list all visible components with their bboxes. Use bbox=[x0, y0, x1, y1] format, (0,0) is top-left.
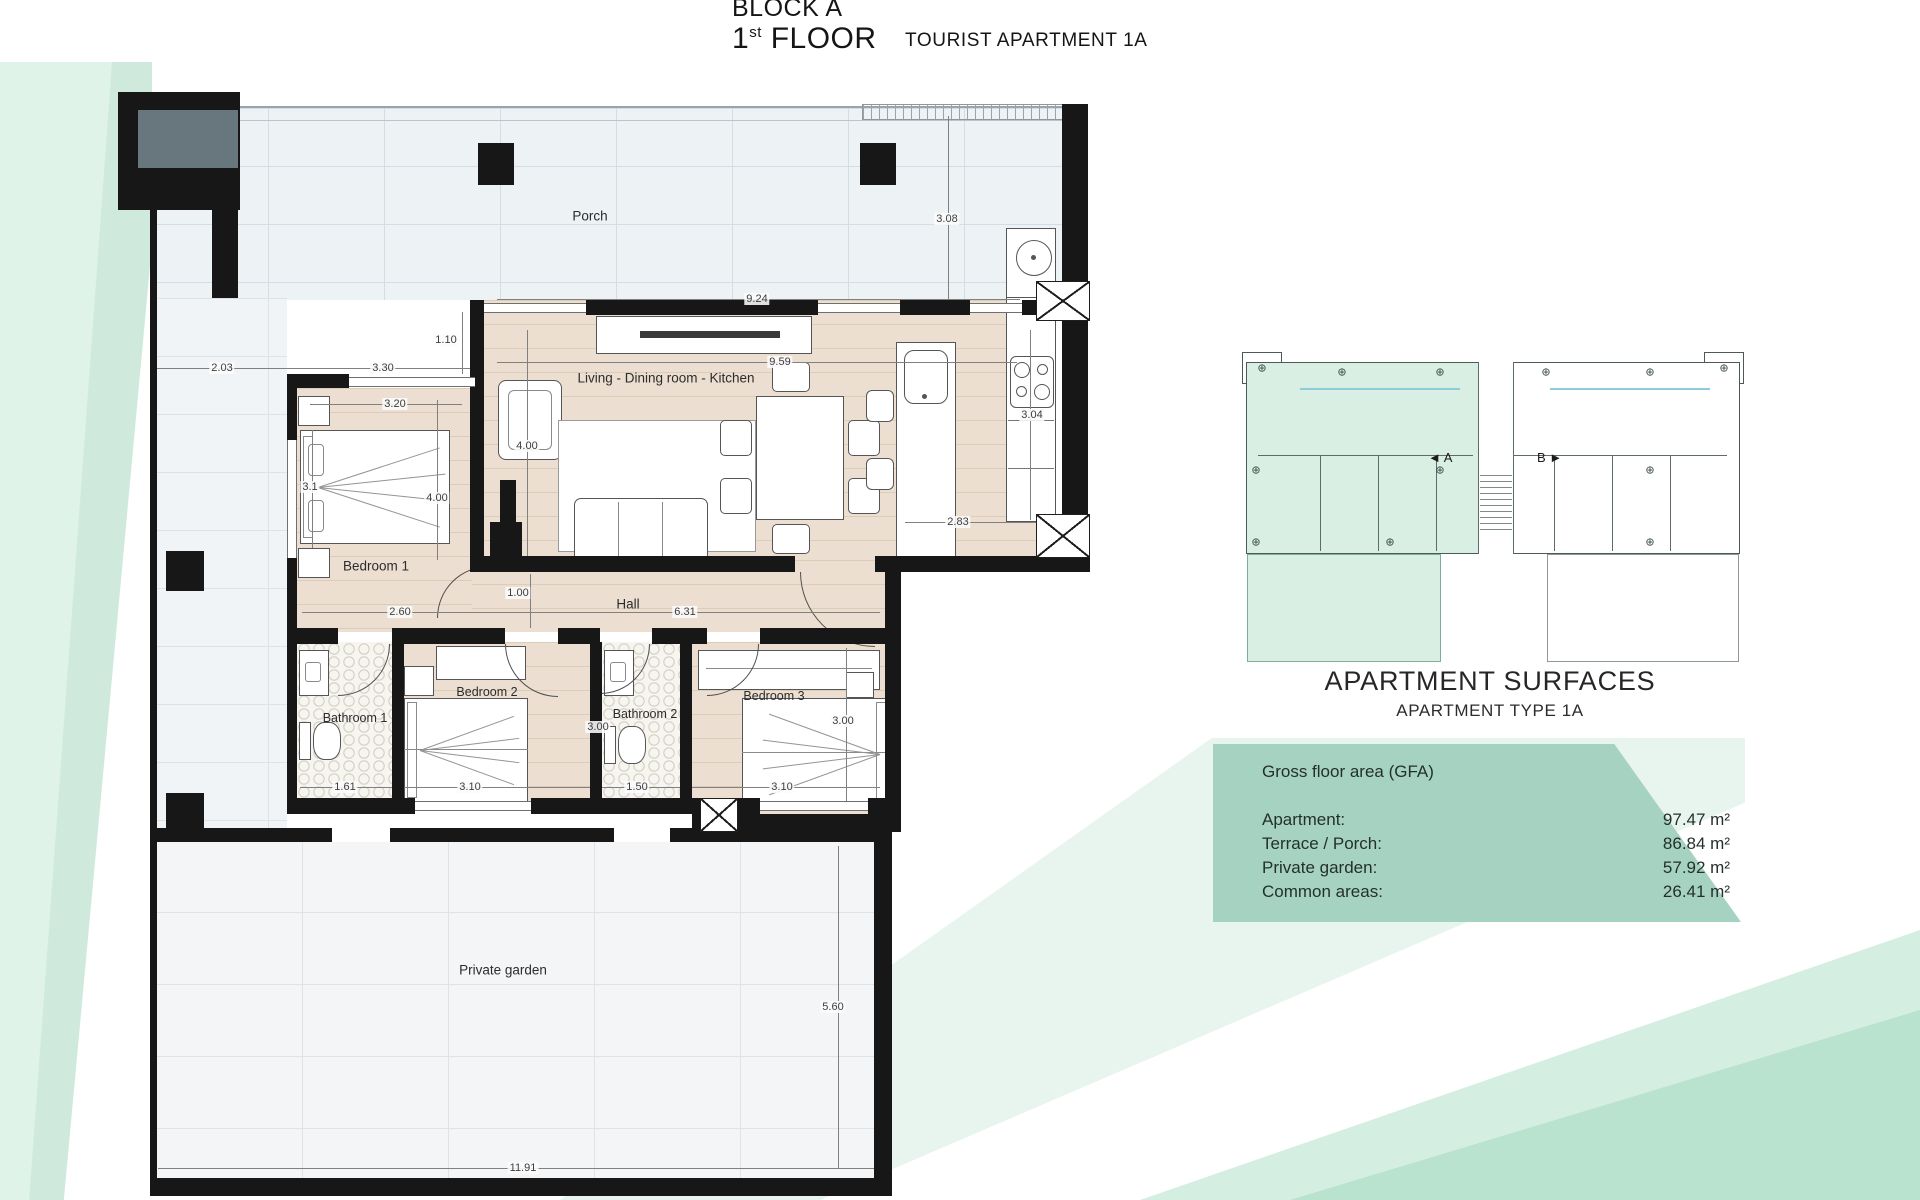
title-block-name: BLOCK A bbox=[732, 0, 843, 23]
dimension-label: 3.1 bbox=[300, 481, 319, 493]
room-label-garden: Private garden bbox=[459, 963, 547, 978]
floor-number: 1 bbox=[732, 22, 749, 55]
living-top-wall bbox=[900, 300, 970, 315]
keyplan-window-line bbox=[1300, 388, 1460, 390]
terrace-pillar bbox=[166, 793, 204, 833]
dimension-label: 3.20 bbox=[382, 398, 407, 410]
chimney-inner bbox=[138, 110, 238, 168]
bed bbox=[742, 698, 890, 810]
corner-sink-drain bbox=[1031, 255, 1036, 260]
dim-line bbox=[497, 362, 1017, 363]
bed-pillow bbox=[308, 444, 324, 476]
dim-line bbox=[437, 400, 438, 560]
surfaces-title: APARTMENT SURFACES bbox=[1190, 666, 1790, 697]
dimension-label: 3.30 bbox=[370, 362, 395, 374]
dimension-label: 3.04 bbox=[1019, 409, 1044, 421]
rooms-bottom-wall bbox=[531, 798, 700, 814]
bath1-bed2-divider bbox=[392, 642, 404, 802]
keyplan-unit-a-highlight bbox=[1247, 363, 1493, 553]
survey-marker-icon: ⊕ bbox=[1541, 366, 1550, 379]
hall-north-wall bbox=[470, 556, 795, 572]
living-top-window bbox=[970, 303, 1022, 313]
stove-burner bbox=[1034, 384, 1050, 400]
surface-row-value: 57.92 m² bbox=[1520, 858, 1730, 878]
porch-floor bbox=[152, 108, 1082, 300]
stove-burner bbox=[1014, 362, 1030, 378]
keyplan-wall bbox=[1554, 455, 1555, 551]
room-label-living: Living - Dining room - Kitchen bbox=[577, 371, 754, 386]
porch-column bbox=[860, 143, 896, 185]
chimney-stub bbox=[212, 210, 238, 298]
bedroom3-bottom-window bbox=[760, 801, 868, 811]
dimension-label: 4.00 bbox=[424, 492, 449, 504]
dimension-label: 3.10 bbox=[769, 781, 794, 793]
dimension-label: 6.31 bbox=[672, 606, 697, 618]
keyplan-unit-b-label: B ► bbox=[1537, 450, 1562, 465]
bed-pillow bbox=[308, 500, 324, 532]
dimension-label: 3.10 bbox=[457, 781, 482, 793]
bedroom1-top-window bbox=[349, 377, 475, 387]
room-label-bathroom2: Bathroom 2 bbox=[613, 707, 678, 721]
floor-plan-sheet: BLOCK A 1st FLOOR TOURIST APARTMENT 1A bbox=[0, 0, 1920, 1200]
room-label-bedroom1: Bedroom 1 bbox=[343, 559, 409, 574]
survey-marker-icon: ⊕ bbox=[1251, 536, 1260, 549]
rooms-top-wall bbox=[760, 628, 901, 644]
surface-row-label: Common areas: bbox=[1262, 882, 1383, 902]
dimension-label: 1.00 bbox=[505, 587, 530, 599]
bathroom1-left-wall bbox=[287, 642, 297, 814]
sofa-seat-line bbox=[618, 502, 619, 558]
nightstand bbox=[298, 548, 330, 578]
bathroom-sink-basin bbox=[305, 662, 321, 682]
counter-divider bbox=[1008, 468, 1054, 469]
shaft-box bbox=[1036, 514, 1090, 558]
rooms-bottom-wall bbox=[738, 798, 760, 814]
right-exterior-wall bbox=[1062, 104, 1088, 562]
dimension-label: 2.03 bbox=[209, 362, 234, 374]
dimension-label: 4.00 bbox=[514, 440, 539, 452]
dimension-label: 2.60 bbox=[387, 606, 412, 618]
toilet-tank bbox=[299, 722, 311, 760]
nightstand bbox=[846, 672, 874, 698]
survey-marker-icon: ⊕ bbox=[1257, 362, 1266, 375]
title-floor: 1st FLOOR bbox=[732, 22, 877, 56]
rooms-bottom-wall bbox=[868, 798, 901, 814]
porch-edge-line2 bbox=[152, 120, 1082, 121]
keyplan-wall bbox=[1378, 455, 1379, 551]
living-top-window bbox=[484, 303, 586, 313]
dimension-label: 1.61 bbox=[332, 781, 357, 793]
survey-marker-icon: ⊕ bbox=[1645, 536, 1654, 549]
room-label-bathroom1: Bathroom 1 bbox=[323, 711, 388, 725]
hall-post-stub bbox=[500, 480, 516, 524]
room-label-porch: Porch bbox=[572, 209, 607, 224]
bedroom1-left-wall bbox=[287, 374, 297, 440]
garden-floor bbox=[156, 840, 878, 1180]
room-label-hall: Hall bbox=[616, 597, 639, 612]
survey-marker-icon: ⊕ bbox=[1251, 464, 1260, 477]
island-stool bbox=[866, 458, 894, 490]
bedroom1-left-window bbox=[287, 440, 297, 558]
bath2-bed3-divider bbox=[680, 642, 692, 814]
survey-marker-icon: ⊕ bbox=[1435, 464, 1444, 477]
survey-marker-icon: ⊕ bbox=[1385, 536, 1394, 549]
rooms-top-wall bbox=[287, 628, 338, 644]
dimension-label: 3.00 bbox=[585, 721, 610, 733]
bedroom3-right-wall bbox=[885, 556, 901, 832]
toilet-bowl bbox=[313, 722, 341, 760]
surface-row-value: 86.84 m² bbox=[1520, 834, 1730, 854]
surface-row-label: Apartment: bbox=[1262, 810, 1345, 830]
keyplan-wall bbox=[1612, 455, 1613, 551]
plot-left-wall bbox=[150, 208, 157, 1196]
sofa-seat-line bbox=[662, 502, 663, 558]
room-label-bedroom3: Bedroom 3 bbox=[743, 689, 804, 703]
tv bbox=[640, 331, 780, 338]
dimension-label: 1.50 bbox=[624, 781, 649, 793]
title-apartment: TOURIST APARTMENT 1A bbox=[905, 30, 1148, 52]
dining-chair bbox=[720, 478, 752, 514]
deco-triangle-dark bbox=[1290, 1010, 1920, 1200]
dim-line bbox=[157, 368, 470, 369]
keyplan-wall bbox=[1320, 455, 1321, 551]
unit-a-letter: A bbox=[1444, 450, 1453, 465]
dining-chair bbox=[772, 524, 810, 554]
survey-marker-icon: ⊕ bbox=[1337, 366, 1346, 379]
dimension-label: 9.24 bbox=[744, 293, 769, 305]
keyplan-window-line bbox=[1550, 388, 1710, 390]
dim-line bbox=[1030, 330, 1031, 520]
dimension-label: 3.00 bbox=[830, 715, 855, 727]
shaft-box bbox=[700, 798, 738, 832]
keyplan-stairs bbox=[1480, 470, 1512, 530]
dim-line bbox=[948, 116, 949, 300]
arrow-right-icon: ► bbox=[1549, 450, 1562, 465]
sofa bbox=[574, 498, 708, 562]
dim-line bbox=[846, 648, 847, 808]
island-stool bbox=[866, 390, 894, 422]
garden-gate-gap bbox=[332, 828, 390, 842]
living-top-window bbox=[818, 303, 900, 313]
surface-row-value: 97.47 m² bbox=[1520, 810, 1730, 830]
surfaces-subtitle: APARTMENT TYPE 1A bbox=[1190, 701, 1790, 721]
rooms-top-wall bbox=[392, 628, 505, 644]
hall-north-wall bbox=[875, 556, 1090, 572]
survey-marker-icon: ⊕ bbox=[1645, 366, 1654, 379]
porch-column bbox=[478, 143, 514, 185]
rooms-bottom-wall bbox=[287, 798, 415, 814]
keyplan-garden-a bbox=[1247, 554, 1441, 662]
survey-marker-icon: ⊕ bbox=[1435, 366, 1444, 379]
stove-burner bbox=[1037, 364, 1048, 375]
bed-headboard bbox=[407, 702, 417, 798]
dimension-label: 9.59 bbox=[767, 356, 792, 368]
living-top-wall bbox=[586, 300, 818, 315]
garden-right-wall bbox=[874, 828, 892, 1196]
porch-hatch-strip bbox=[862, 104, 1082, 120]
garden-bottom-wall bbox=[150, 1178, 892, 1196]
garden-gate-gap bbox=[614, 828, 670, 842]
surface-row-label: Terrace / Porch: bbox=[1262, 834, 1382, 854]
toilet-bowl bbox=[618, 726, 646, 764]
dining-table bbox=[756, 396, 844, 520]
survey-marker-icon: ⊕ bbox=[1719, 362, 1728, 375]
island-faucet bbox=[922, 394, 927, 399]
dining-chair bbox=[720, 420, 752, 456]
floor-ordinal: st bbox=[749, 24, 762, 41]
keyplan-wall bbox=[1670, 455, 1671, 551]
floor-word: FLOOR bbox=[762, 22, 877, 55]
surface-row-value: 26.41 m² bbox=[1520, 882, 1730, 902]
dim-line bbox=[462, 312, 463, 374]
nightstand bbox=[298, 396, 330, 426]
dim-line bbox=[530, 574, 531, 628]
nightstand bbox=[404, 666, 434, 696]
dimension-label: 5.60 bbox=[820, 1001, 845, 1013]
keyplan-garden-b bbox=[1547, 554, 1739, 662]
dimension-label: 1.10 bbox=[433, 334, 458, 346]
stove-burner bbox=[1016, 386, 1027, 397]
unit-b-letter: B bbox=[1537, 450, 1546, 465]
garden-top-wall bbox=[150, 828, 876, 842]
room-label-bedroom2: Bedroom 2 bbox=[456, 685, 517, 699]
dining-chair bbox=[848, 420, 880, 456]
shaft-box bbox=[1036, 281, 1090, 321]
bedroom1-divider-wall bbox=[470, 374, 484, 556]
bedroom2-bottom-window bbox=[415, 801, 531, 811]
survey-marker-icon: ⊕ bbox=[1645, 464, 1654, 477]
dimension-label: 3.08 bbox=[934, 213, 959, 225]
dimension-label: 11.91 bbox=[508, 1162, 539, 1174]
dimension-label: 2.83 bbox=[945, 516, 970, 528]
surface-row-label: Private garden: bbox=[1262, 858, 1377, 878]
terrace-pillar bbox=[166, 551, 204, 591]
gfa-header: Gross floor area (GFA) bbox=[1262, 762, 1434, 782]
